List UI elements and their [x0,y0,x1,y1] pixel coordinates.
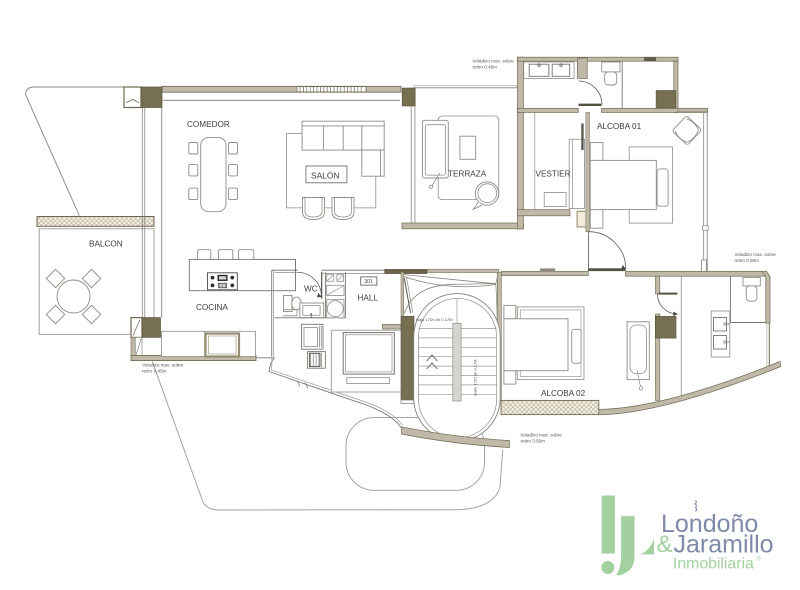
svg-text:ALCOBA 01: ALCOBA 01 [597,122,642,131]
svg-text:BALCON: BALCON [89,240,123,249]
svg-text:SALÓN: SALÓN [311,170,339,180]
svg-text:Voladizo max. sobre: Voladizo max. sobre [142,363,184,368]
svg-text:COCINA: COCINA [196,303,228,312]
svg-text:ALCOBA 02: ALCOBA 02 [541,389,586,398]
svg-text:HALL: HALL [358,294,379,303]
svg-text:Sube 17Dl de 0.17M: Sube 17Dl de 0.17M [473,360,478,396]
svg-text:TERRAZA: TERRAZA [448,170,487,179]
svg-text:301: 301 [364,279,373,285]
svg-text:Voladizo max. sobre: Voladizo max. sobre [521,433,563,438]
svg-text:retiro 0.50m: retiro 0.50m [735,258,760,263]
svg-text:Baja 17Dh de 0.17M: Baja 17Dh de 0.17M [416,317,452,322]
svg-text:®: ® [757,556,762,563]
svg-text:Jaramillo: Jaramillo [674,531,774,559]
svg-text:retiro 0.45m: retiro 0.45m [473,65,498,70]
svg-text:Voladizo max. sobre: Voladizo max. sobre [473,59,515,64]
svg-text:retiro 3.50m: retiro 3.50m [521,439,546,444]
svg-text:Voladizo max. sobre: Voladizo max. sobre [735,252,777,257]
svg-text:&: & [657,531,673,558]
svg-text:WC: WC [304,285,318,294]
svg-text:COMEDOR: COMEDOR [187,120,230,129]
svg-text:Inmobiliaria: Inmobiliaria [673,556,754,573]
svg-text:retiro 0.45m: retiro 0.45m [142,369,167,374]
svg-text:VESTIER: VESTIER [536,170,571,179]
